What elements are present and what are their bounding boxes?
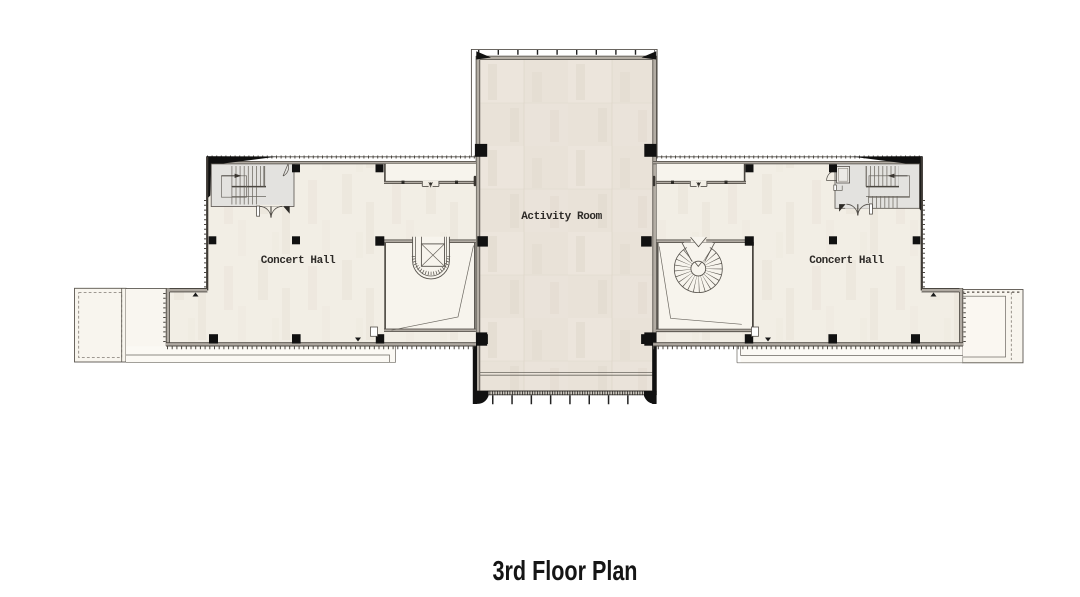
svg-text:Concert Hall: Concert Hall — [809, 255, 884, 267]
svg-text:Concert Hall: Concert Hall — [261, 255, 336, 267]
svg-text:Activity Room: Activity Room — [521, 211, 602, 223]
